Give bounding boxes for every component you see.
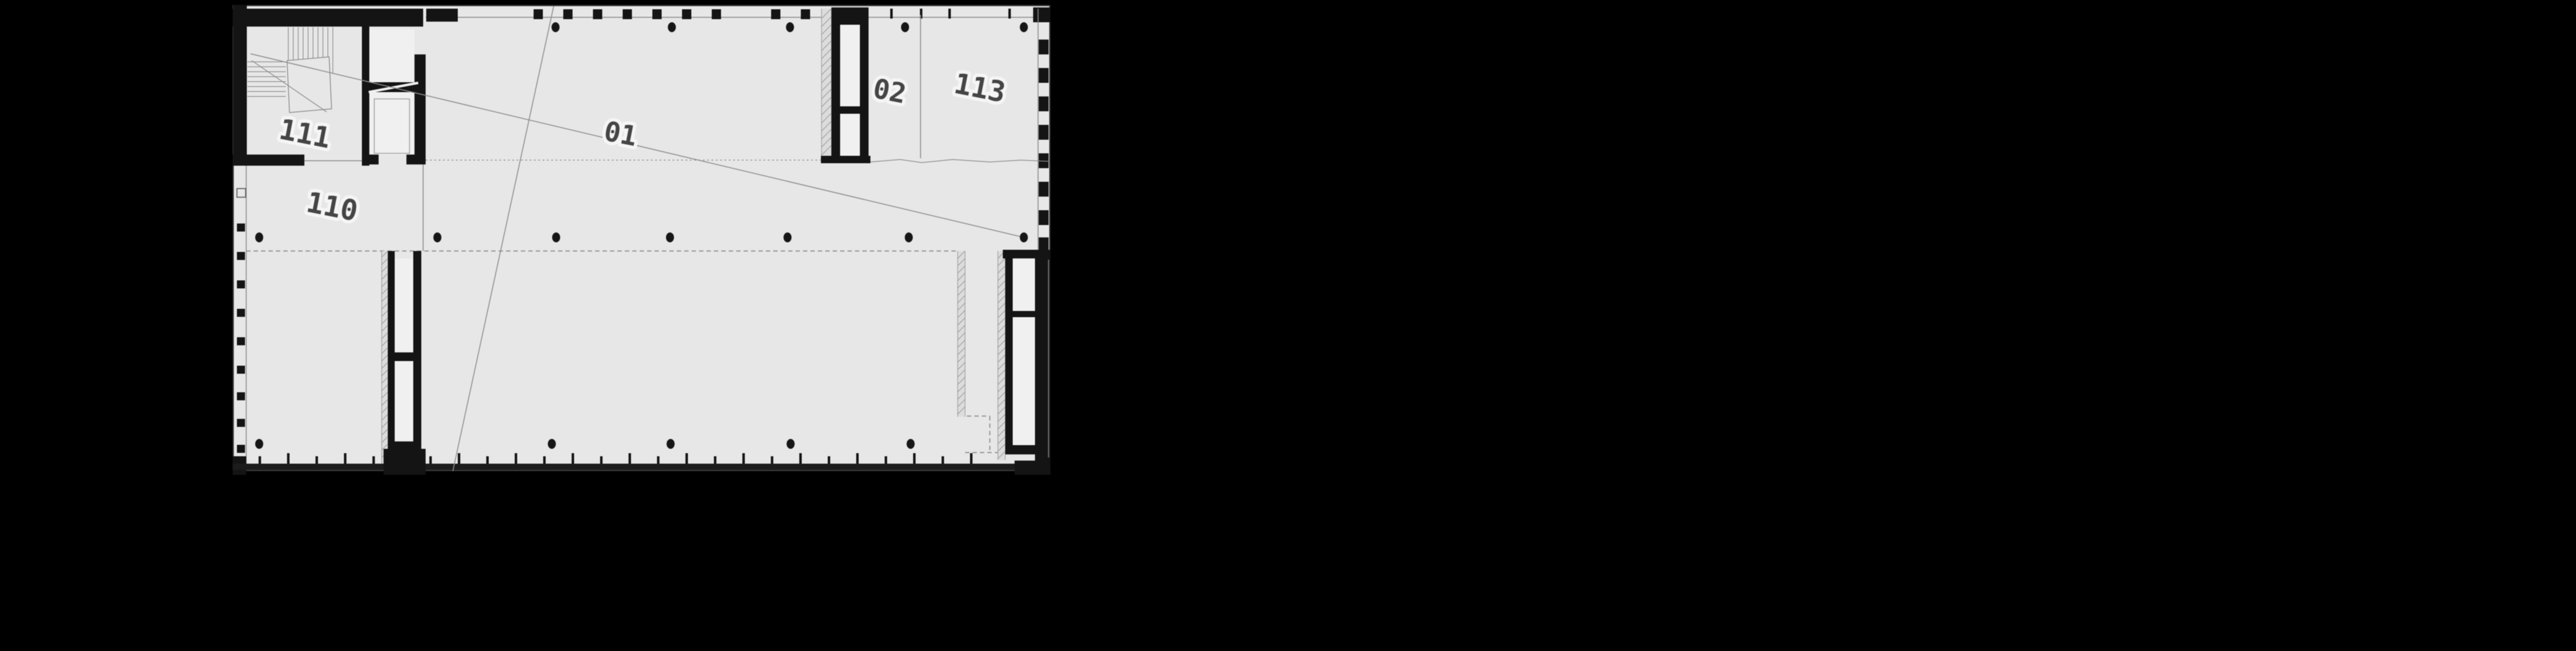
room-label-01: 01: [601, 116, 640, 153]
column-dot: [668, 22, 676, 32]
stair-landing: [287, 57, 332, 113]
top-mullion-square: [682, 9, 692, 19]
bottom-facade-tick: [572, 453, 574, 464]
shaft-cell: [1013, 317, 1035, 445]
shaftBL-divider: [388, 441, 421, 449]
left-mullion-square: [237, 309, 245, 317]
shaftBR-left-wall: [1005, 250, 1013, 454]
shaft02-divider: [840, 106, 860, 114]
column-dot: [255, 232, 264, 242]
column-dot: [552, 232, 560, 242]
stairwell-top-wall: [233, 9, 423, 27]
left-mullion-square: [237, 393, 245, 401]
bottom-facade-tick: [629, 453, 631, 464]
shaft-cell: [840, 25, 860, 106]
bottom-facade-tick: [913, 453, 916, 464]
top-mullion-square: [771, 9, 781, 19]
top-wall-segment: [426, 9, 458, 22]
column-dot: [548, 439, 556, 449]
left-mullion-square: [237, 445, 245, 453]
right-mullion-dash: [1039, 210, 1049, 225]
shaft02-right-wall: [860, 7, 869, 160]
column-dot: [901, 22, 909, 32]
top-mullion-tick: [948, 9, 951, 19]
facade-right-mullions: [1038, 9, 1049, 252]
bottom-facade-tick: [828, 456, 830, 464]
bottom-facade-tick: [287, 453, 290, 464]
column-dot: [905, 232, 913, 242]
right-mullion-dash: [1039, 68, 1049, 83]
bottom-right-corner-block: [1015, 461, 1050, 475]
shaft-cell: [395, 258, 413, 352]
bottom-facade-tick: [685, 453, 688, 464]
left-mullion-square: [237, 224, 245, 232]
shaft-cell: [840, 114, 860, 156]
plan-paper-sheet: [233, 5, 1050, 471]
column-dot: [1020, 232, 1028, 242]
bottom-facade-tick: [856, 453, 859, 464]
bottom-facade-tick: [657, 456, 659, 464]
right-mullion-dash: [1039, 96, 1049, 111]
column-dot: [434, 232, 442, 242]
top-mullion-square: [653, 9, 662, 19]
elevator-right-wall: [414, 54, 426, 163]
column-dot: [255, 439, 264, 449]
column-dot: [666, 232, 674, 242]
left-facade-door-notch: [237, 189, 246, 197]
canvas-background: 111 110 01 02 113: [0, 0, 2576, 651]
bottom-facade-tick: [486, 456, 489, 464]
left-mullion-square: [237, 281, 245, 289]
shaft02-bottom-wall: [821, 156, 870, 163]
column-dot: [552, 22, 560, 32]
bottom-facade-tick: [771, 456, 773, 464]
top-mullion-square: [801, 9, 810, 19]
shaft-cell: [369, 92, 414, 155]
bottom-facade-tick: [970, 453, 972, 464]
bottom-facade-tick: [742, 453, 745, 464]
left-mullion-square: [237, 338, 245, 346]
bottom-facade-tick: [600, 456, 603, 464]
bottom-facade-tick: [799, 453, 802, 464]
column-dot: [907, 439, 915, 449]
left-mullion-square: [237, 366, 245, 374]
shaftBL-bottom-block: [384, 449, 426, 475]
left-mullion-square: [237, 419, 245, 427]
bottom-facade-tick: [515, 453, 517, 464]
shaft02-left-wall: [831, 7, 840, 160]
bottom-facade-tick: [885, 456, 887, 464]
shaft-cell: [395, 361, 413, 441]
top-mullion-square: [593, 9, 603, 19]
top-mullion-square: [712, 9, 721, 19]
bottom-facade-tick: [458, 453, 460, 464]
plan-paper: [233, 5, 1050, 471]
bottom-facade-band: [233, 464, 1050, 470]
floor-plan: 111 110 01 02 113: [0, 0, 2576, 651]
bottom-facade-tick: [942, 456, 944, 464]
bottom-facade-tick: [372, 456, 375, 464]
shaftBR-bottom-wall: [1005, 445, 1035, 454]
right-mullion-dash: [1039, 125, 1049, 140]
shaft-cell: [1013, 258, 1035, 311]
column-dot: [1020, 22, 1028, 32]
hatch-strip: [998, 251, 1005, 460]
stairwell-elevator-wall: [362, 26, 369, 166]
column-dot: [786, 22, 794, 32]
right-mullion-dash: [1039, 40, 1049, 54]
top-mullion-square: [534, 9, 543, 19]
bottom-facade-tick: [543, 456, 546, 464]
top-mullion-tick: [1008, 9, 1011, 19]
shaftBR-divider: [1013, 311, 1035, 317]
bottom-facade-tick: [344, 453, 346, 464]
elevator-bottom-stub: [406, 155, 426, 164]
top-mullion-tick: [890, 9, 893, 19]
bottom-facade-tick: [429, 456, 432, 464]
room-111-bottom-wall: [233, 155, 304, 166]
column-dot: [787, 439, 795, 449]
shaft-cell: [369, 30, 414, 82]
column-dot: [667, 439, 675, 449]
stairwell-left-wall: [233, 5, 247, 166]
left-mullion-square: [237, 252, 245, 260]
right-mullion-dash: [1039, 182, 1049, 197]
bottom-facade-tick: [714, 456, 716, 464]
bottom-facade-tick: [259, 456, 261, 464]
top-right-corner-block: [1033, 7, 1050, 22]
top-mullion-square: [564, 9, 573, 19]
elevator-bottom-stub: [362, 155, 379, 164]
shaftBL-divider: [388, 352, 421, 361]
room-label-02: 02: [870, 73, 909, 110]
bottom-facade-tick: [316, 456, 318, 464]
column-dot: [784, 232, 792, 242]
top-mullion-square: [623, 9, 632, 19]
